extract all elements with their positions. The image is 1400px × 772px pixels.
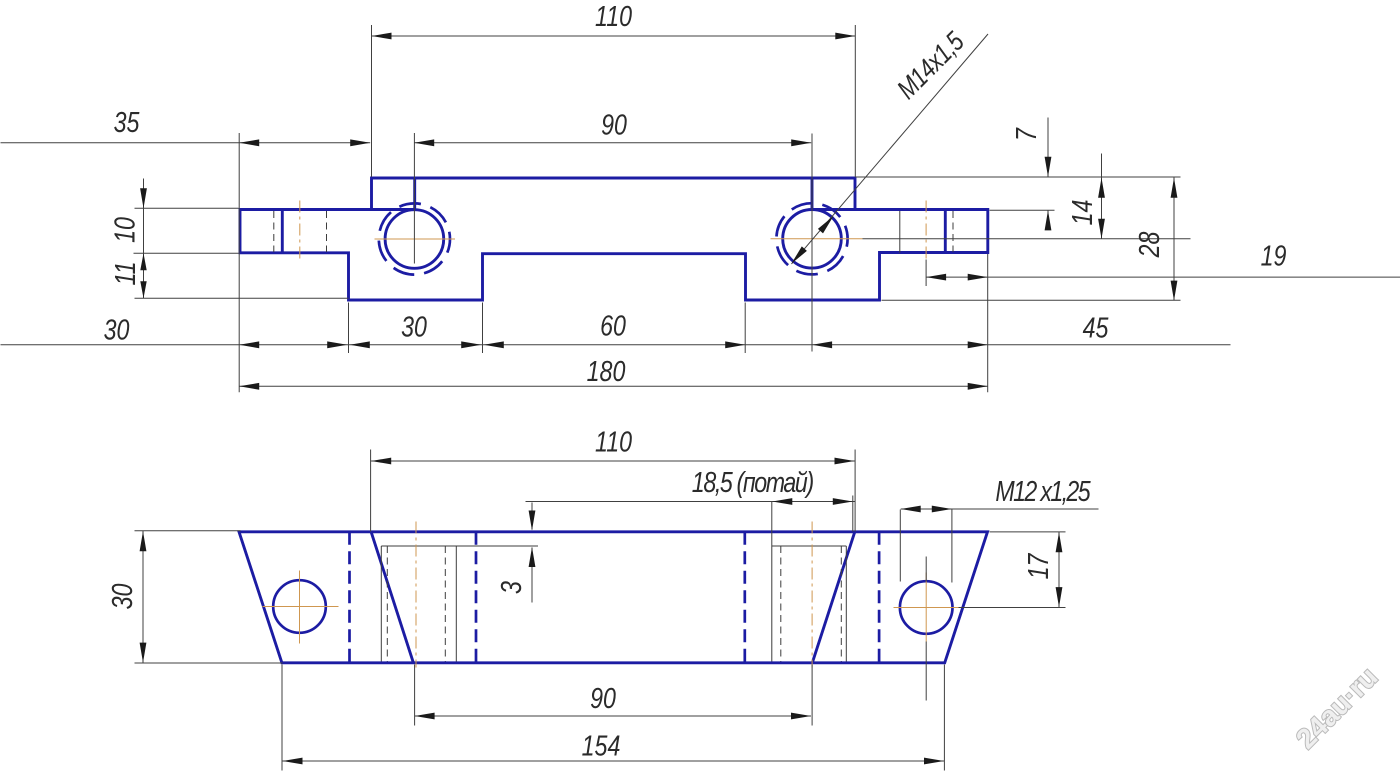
- svg-text:35: 35: [114, 105, 140, 138]
- svg-text:30: 30: [104, 313, 130, 346]
- svg-text:10: 10: [108, 217, 141, 243]
- svg-text:30: 30: [401, 310, 427, 343]
- svg-text:154: 154: [582, 729, 621, 762]
- svg-text:3: 3: [494, 581, 527, 594]
- svg-text:90: 90: [601, 108, 627, 141]
- svg-text:7: 7: [1009, 127, 1042, 141]
- svg-text:17: 17: [1021, 552, 1054, 579]
- svg-text:60: 60: [600, 309, 626, 342]
- svg-text:90: 90: [590, 681, 616, 714]
- svg-text:110: 110: [595, 0, 632, 33]
- svg-text:28: 28: [1132, 231, 1165, 258]
- svg-text:19: 19: [1261, 239, 1287, 272]
- svg-text:110: 110: [595, 425, 632, 458]
- svg-text:11: 11: [108, 261, 141, 285]
- svg-text:30: 30: [105, 583, 138, 609]
- svg-text:14: 14: [1065, 200, 1098, 226]
- svg-text:45: 45: [1083, 311, 1109, 344]
- svg-text:M12 x1,25: M12 x1,25: [995, 474, 1091, 507]
- svg-text:180: 180: [587, 354, 626, 387]
- svg-text:18,5 (потай): 18,5 (потай): [692, 465, 814, 498]
